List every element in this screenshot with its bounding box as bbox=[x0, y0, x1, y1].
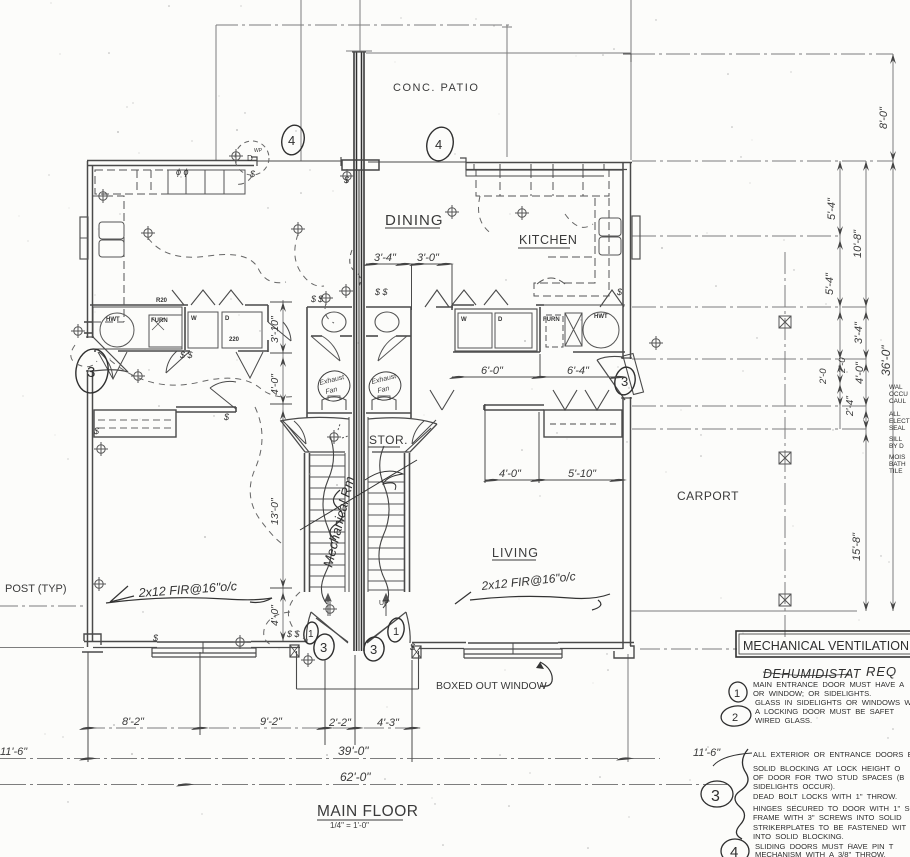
svg-text:SEAL: SEAL bbox=[889, 425, 906, 432]
svg-text:R20: R20 bbox=[156, 298, 168, 304]
svg-text:$: $ bbox=[317, 294, 324, 304]
svg-text:HWT: HWT bbox=[594, 314, 608, 320]
svg-text:220: 220 bbox=[229, 337, 240, 343]
svg-text:FURN: FURN bbox=[151, 318, 168, 324]
svg-text:OCCU: OCCU bbox=[889, 391, 908, 398]
svg-text:5'-4": 5'-4" bbox=[824, 272, 836, 295]
svg-text:3'-10": 3'-10" bbox=[269, 315, 281, 343]
svg-text:STRIKERPLATES TO BE FASTENE: STRIKERPLATES TO BE FASTENED WIT bbox=[753, 823, 906, 832]
svg-text:8'-0": 8'-0" bbox=[878, 106, 890, 129]
svg-text:$: $ bbox=[223, 412, 230, 422]
svg-text:D: D bbox=[225, 316, 230, 322]
svg-text:HINGES SECURED TO DOOR WIT: HINGES SECURED TO DOOR WITH 1" SC bbox=[753, 804, 910, 813]
svg-text:13'-0": 13'-0" bbox=[269, 497, 281, 525]
svg-text:WP: WP bbox=[254, 148, 263, 154]
svg-text:3'-4": 3'-4" bbox=[374, 252, 397, 264]
svg-text:4: 4 bbox=[288, 133, 295, 148]
svg-text:4'-0": 4'-0" bbox=[854, 361, 866, 384]
svg-text:MAIN ENTRANCE DOOR MUST HA: MAIN ENTRANCE DOOR MUST HAVE A bbox=[753, 680, 905, 689]
svg-text:10'-8": 10'-8" bbox=[852, 229, 864, 258]
svg-text:SILL: SILL bbox=[889, 436, 903, 443]
svg-text:36'-0": 36'-0" bbox=[879, 345, 893, 376]
svg-text:Fan: Fan bbox=[377, 385, 391, 395]
svg-text:HWT: HWT bbox=[106, 317, 120, 323]
svg-text:39'-0": 39'-0" bbox=[338, 744, 369, 758]
svg-text:ϕ ϕ: ϕ ϕ bbox=[176, 167, 189, 177]
svg-text:3: 3 bbox=[370, 642, 377, 657]
svg-text:$: $ bbox=[310, 294, 317, 304]
svg-text:4'-3": 4'-3" bbox=[377, 717, 400, 729]
svg-text:4'-0": 4'-0" bbox=[269, 604, 281, 626]
svg-text:CONC. PATIO: CONC. PATIO bbox=[393, 82, 479, 94]
svg-text:ALL: ALL bbox=[889, 411, 901, 418]
svg-text:$ $: $ $ bbox=[286, 629, 301, 639]
svg-text:4'-0": 4'-0" bbox=[499, 468, 522, 480]
svg-text:D: D bbox=[247, 154, 253, 163]
svg-text:OR WINDOW; OR SIDELIGHTS.: OR WINDOW; OR SIDELIGHTS. bbox=[753, 689, 871, 698]
svg-text:WAL: WAL bbox=[889, 384, 903, 391]
svg-text:1/4" = 1'-0": 1/4" = 1'-0" bbox=[330, 821, 369, 830]
svg-text:Fan: Fan bbox=[325, 386, 339, 396]
svg-text:SOLID BLOCKING AT LOCK HEI: SOLID BLOCKING AT LOCK HEIGHT O bbox=[753, 764, 900, 773]
svg-text:W: W bbox=[461, 317, 467, 323]
svg-text:3: 3 bbox=[320, 640, 327, 655]
svg-text:LIVING: LIVING bbox=[492, 546, 539, 560]
svg-text:WIRED GLASS.: WIRED GLASS. bbox=[755, 716, 812, 725]
svg-text:4'-0": 4'-0" bbox=[269, 373, 281, 395]
svg-text:$: $ bbox=[152, 633, 159, 643]
svg-text:2: 2 bbox=[732, 712, 738, 724]
svg-text:MOIS: MOIS bbox=[889, 454, 905, 461]
svg-text:11'-6": 11'-6" bbox=[693, 747, 721, 759]
svg-text:MAIN FLOOR: MAIN FLOOR bbox=[317, 803, 418, 820]
svg-text:$: $ bbox=[616, 287, 623, 297]
svg-text:BOXED OUT WINDOW: BOXED OUT WINDOW bbox=[436, 680, 547, 692]
svg-text:BY D: BY D bbox=[889, 443, 904, 450]
svg-text:A LOCKING DOOR MUST BE SA: A LOCKING DOOR MUST BE SAFET bbox=[755, 707, 894, 716]
svg-text:5'-4": 5'-4" bbox=[826, 197, 838, 220]
svg-text:DINING: DINING bbox=[385, 212, 444, 229]
svg-text:3: 3 bbox=[711, 788, 720, 805]
svg-text:CARPORT: CARPORT bbox=[677, 489, 739, 503]
svg-text:2'-4": 2'-4" bbox=[845, 396, 856, 417]
svg-text:4: 4 bbox=[435, 137, 442, 152]
svg-text:TILE: TILE bbox=[889, 468, 903, 475]
svg-text:ALL EXTERIOR OR ENTRANCE D: ALL EXTERIOR OR ENTRANCE DOORS E bbox=[753, 750, 910, 759]
svg-text:5'-10": 5'-10" bbox=[568, 468, 597, 480]
svg-text:11'-6": 11'-6" bbox=[0, 746, 28, 758]
svg-text:INTO SOLID BLOCKING.: INTO SOLID BLOCKING. bbox=[753, 832, 844, 841]
svg-text:2x12 FIR@16"o/c: 2x12 FIR@16"o/c bbox=[137, 579, 238, 600]
svg-text:8'-2": 8'-2" bbox=[122, 716, 145, 728]
svg-text:BATH: BATH bbox=[889, 461, 906, 468]
svg-text:2'-2": 2'-2" bbox=[328, 717, 352, 729]
svg-text:OF DOOR FOR TWO STUD SPAC: OF DOOR FOR TWO STUD SPACES (B bbox=[753, 773, 904, 782]
svg-text:1: 1 bbox=[308, 629, 314, 640]
svg-text:$ $: $ $ bbox=[374, 287, 389, 297]
svg-text:$: $ bbox=[93, 426, 100, 436]
svg-text:2x12 FIR@16"o/c: 2x12 FIR@16"o/c bbox=[480, 569, 576, 593]
svg-text:62'-0": 62'-0" bbox=[340, 770, 371, 784]
svg-text:W: W bbox=[191, 316, 197, 322]
svg-text:1: 1 bbox=[393, 626, 399, 638]
svg-text:$ $: $ $ bbox=[179, 350, 194, 360]
svg-text:GLASS IN SIDELIGHTS OR WIN: GLASS IN SIDELIGHTS OR WINDOWS W bbox=[755, 698, 910, 707]
svg-text:9'-2": 9'-2" bbox=[260, 716, 283, 728]
svg-text:3'-0": 3'-0" bbox=[417, 252, 440, 264]
svg-text:FURN: FURN bbox=[543, 317, 560, 323]
svg-text:UP: UP bbox=[379, 600, 389, 607]
svg-text:3'-4": 3'-4" bbox=[853, 321, 865, 344]
svg-text:ELECT: ELECT bbox=[889, 418, 910, 425]
svg-text:6'-4": 6'-4" bbox=[567, 365, 590, 377]
svg-text:MECHANICAL VENTILATION IS: MECHANICAL VENTILATION IS bbox=[743, 639, 910, 653]
svg-text:15'-8": 15'-8" bbox=[851, 532, 863, 561]
svg-text:STOR.: STOR. bbox=[369, 433, 408, 447]
svg-text:$: $ bbox=[409, 642, 416, 652]
svg-text:CAUL: CAUL bbox=[889, 398, 906, 405]
svg-text:SIDELIGHTS OCCUR).: SIDELIGHTS OCCUR). bbox=[753, 782, 835, 791]
svg-text:KITCHEN: KITCHEN bbox=[519, 233, 577, 247]
svg-text:Exhaust: Exhaust bbox=[371, 373, 398, 386]
svg-text:D: D bbox=[498, 317, 503, 323]
svg-text:2'-0: 2'-0 bbox=[818, 368, 829, 385]
svg-text:FRAME WITH 3" SCREWS INTO: FRAME WITH 3" SCREWS INTO SOLID bbox=[753, 813, 902, 822]
svg-text:MECHANISM WITH A 3/8" THROW: MECHANISM WITH A 3/8" THROW. bbox=[755, 850, 886, 857]
svg-text:REQ: REQ bbox=[866, 664, 897, 679]
svg-text:$: $ bbox=[249, 169, 256, 179]
svg-text:1: 1 bbox=[734, 688, 740, 700]
svg-text:6'-0": 6'-0" bbox=[481, 365, 504, 377]
svg-text:4: 4 bbox=[730, 844, 738, 857]
svg-text:POST (TYP): POST (TYP) bbox=[5, 583, 67, 595]
svg-text:DEAD BOLT LOCKS WITH 1" TH: DEAD BOLT LOCKS WITH 1" THROW. bbox=[753, 792, 897, 801]
svg-text:$: $ bbox=[343, 175, 350, 185]
